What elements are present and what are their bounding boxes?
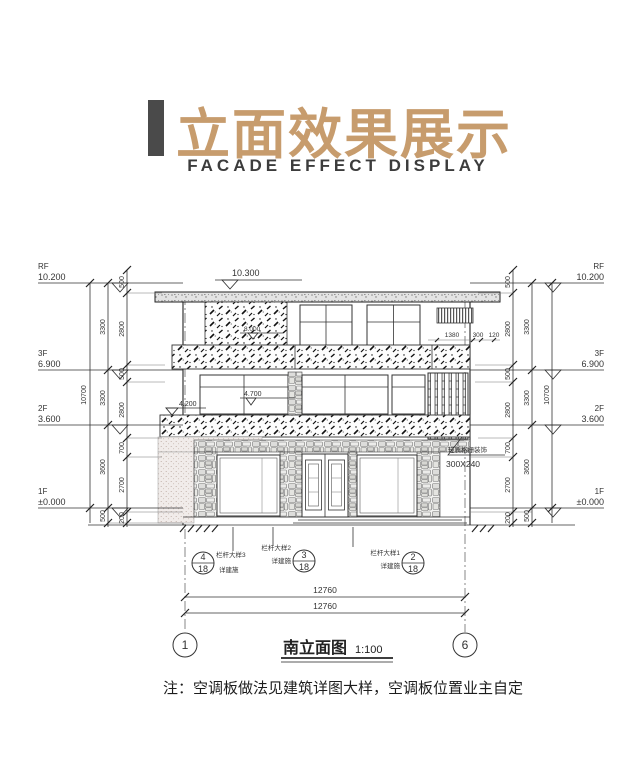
- svg-text:1F: 1F: [38, 487, 47, 496]
- svg-text:详建施: 详建施: [272, 556, 292, 565]
- svg-text:RF: RF: [593, 262, 604, 271]
- svg-text:10.200: 10.200: [38, 272, 66, 282]
- railing-callout-3: 2 18 栏杆大样1 详建施: [353, 527, 424, 574]
- second-floor-window-right: [392, 375, 425, 414]
- stone-pier-3: [348, 452, 357, 517]
- svg-text:18: 18: [198, 564, 208, 574]
- svg-text:700: 700: [505, 442, 512, 454]
- svg-text:RF: RF: [38, 262, 49, 271]
- second-floor-window-middle: [302, 375, 388, 414]
- svg-text:3: 3: [301, 550, 306, 560]
- svg-text:1F: 1F: [595, 487, 604, 496]
- svg-text:2800: 2800: [505, 321, 512, 337]
- third-floor-window-left: [300, 305, 352, 346]
- stone-pier-1: [194, 452, 217, 517]
- svg-text:6: 6: [462, 638, 469, 652]
- axis-bubble-1: 1: [173, 633, 197, 657]
- svg-text:2: 2: [410, 552, 415, 562]
- third-floor-balcony-band: [172, 345, 470, 369]
- roof-grille: [437, 308, 473, 323]
- svg-text:6.900: 6.900: [38, 359, 61, 369]
- stone-pier-2: [280, 452, 302, 517]
- svg-text:2800: 2800: [119, 402, 126, 418]
- svg-text:栏杆大样2: 栏杆大样2: [261, 543, 291, 552]
- svg-text:详建施: 详建施: [381, 561, 401, 570]
- svg-text:3F: 3F: [595, 349, 604, 358]
- svg-text:1: 1: [182, 638, 189, 652]
- svg-text:±0.000: ±0.000: [577, 497, 604, 507]
- right-level-RF: RF 10.200: [470, 262, 604, 292]
- bottom-dimensions: 12760 12760: [181, 585, 469, 617]
- svg-text:栏杆大样3: 栏杆大样3: [216, 550, 246, 559]
- third-floor-stone-panel: [205, 302, 287, 348]
- svg-text:500: 500: [505, 276, 512, 288]
- second-floor-balcony-band: [160, 415, 470, 437]
- svg-text:18: 18: [408, 564, 418, 574]
- balcony-elevation-label: 4.200: [179, 401, 197, 408]
- right-level-1F: 1F ±0.000: [470, 487, 604, 517]
- wall-elevation-label: 8.000: [244, 326, 261, 333]
- svg-text:3300: 3300: [100, 390, 107, 406]
- first-floor-window-right: [357, 455, 417, 516]
- left-level-3F: 3F 6.900: [38, 349, 183, 379]
- railing-callout-2: 3 18 栏杆大样2 详建施: [261, 527, 315, 572]
- svg-text:500: 500: [100, 510, 107, 522]
- caption-title: 南立面图: [283, 638, 347, 657]
- svg-text:2700: 2700: [119, 477, 126, 493]
- roof-elevation-label: 10.300: [232, 268, 260, 278]
- first-floor-stone-course: [194, 440, 470, 452]
- entry-double-door: [302, 454, 348, 517]
- svg-text:3600: 3600: [100, 459, 107, 475]
- overall-width-dim-1: 12760: [313, 585, 337, 595]
- svg-text:栏杆大样1: 栏杆大样1: [370, 548, 400, 557]
- svg-text:18: 18: [299, 562, 309, 572]
- left-level-RF: RF 10.200: [38, 262, 183, 292]
- svg-text:3F: 3F: [38, 349, 47, 358]
- page-subtitle: FACADE EFFECT DISPLAY: [170, 156, 506, 176]
- svg-text:4: 4: [200, 552, 205, 562]
- svg-text:200: 200: [505, 512, 512, 524]
- svg-text:2800: 2800: [505, 402, 512, 418]
- canopy-elevation-label: 4.700: [244, 391, 262, 398]
- svg-text:详建施: 详建施: [219, 565, 239, 574]
- railing-callout-1: 4 18 栏杆大样3 详建施: [192, 527, 246, 574]
- stucco-pier-left: [158, 452, 194, 523]
- svg-text:2700: 2700: [505, 477, 512, 493]
- caption-scale: 1:100: [355, 644, 383, 656]
- svg-text:2F: 2F: [38, 404, 47, 413]
- svg-text:3.600: 3.600: [581, 414, 604, 424]
- drawing-caption: 南立面图 1:100: [281, 638, 393, 662]
- svg-text:3300: 3300: [100, 319, 107, 335]
- svg-text:±0.000: ±0.000: [38, 497, 65, 507]
- svg-text:2800: 2800: [119, 321, 126, 337]
- svg-text:500: 500: [119, 276, 126, 288]
- svg-text:6.900: 6.900: [581, 359, 604, 369]
- grille-note-size: 300X240: [446, 459, 480, 469]
- svg-text:10700: 10700: [81, 385, 88, 405]
- svg-text:3.600: 3.600: [38, 414, 61, 424]
- svg-text:500: 500: [119, 368, 126, 380]
- right-dimension-chains: 10700 3300 3300 3600 500 500 2800 500 28…: [470, 266, 556, 527]
- right-level-2F: 2F 3.600: [470, 404, 604, 434]
- entry-steps: [183, 517, 470, 523]
- svg-text:10700: 10700: [544, 385, 551, 405]
- svg-text:500: 500: [524, 510, 531, 522]
- svg-text:2F: 2F: [595, 404, 604, 413]
- grille-note-text: 轻质格栅装饰: [448, 445, 488, 454]
- svg-text:500: 500: [505, 368, 512, 380]
- grille-dimensions: 1380 300 120: [428, 332, 500, 342]
- stone-pier-4: [417, 452, 440, 517]
- elevation-drawing: 10.300 8.000 1380 300 120: [0, 245, 640, 760]
- svg-text:3300: 3300: [524, 319, 531, 335]
- drawing-note: 注：空调板做法见建筑详图大样，空调板位置业主自定: [163, 679, 523, 697]
- svg-text:700: 700: [119, 442, 126, 454]
- svg-text:200: 200: [119, 512, 126, 524]
- svg-text:3600: 3600: [524, 459, 531, 475]
- title-accent-bar: [148, 100, 164, 156]
- svg-text:3300: 3300: [524, 390, 531, 406]
- roof-slab: [155, 292, 500, 302]
- axis-bubble-6: 6: [453, 633, 477, 657]
- ground-hatch: [180, 525, 494, 532]
- grille-dim-120: 120: [489, 332, 500, 339]
- third-floor-window-right: [367, 305, 420, 346]
- grille-dim-1380: 1380: [445, 332, 460, 339]
- roof-level-marker: 10.300: [215, 268, 302, 289]
- svg-text:10.200: 10.200: [576, 272, 604, 282]
- first-floor-window-left: [217, 455, 280, 516]
- right-level-3F: 3F 6.900: [470, 349, 604, 379]
- overall-width-dim-2: 12760: [313, 601, 337, 611]
